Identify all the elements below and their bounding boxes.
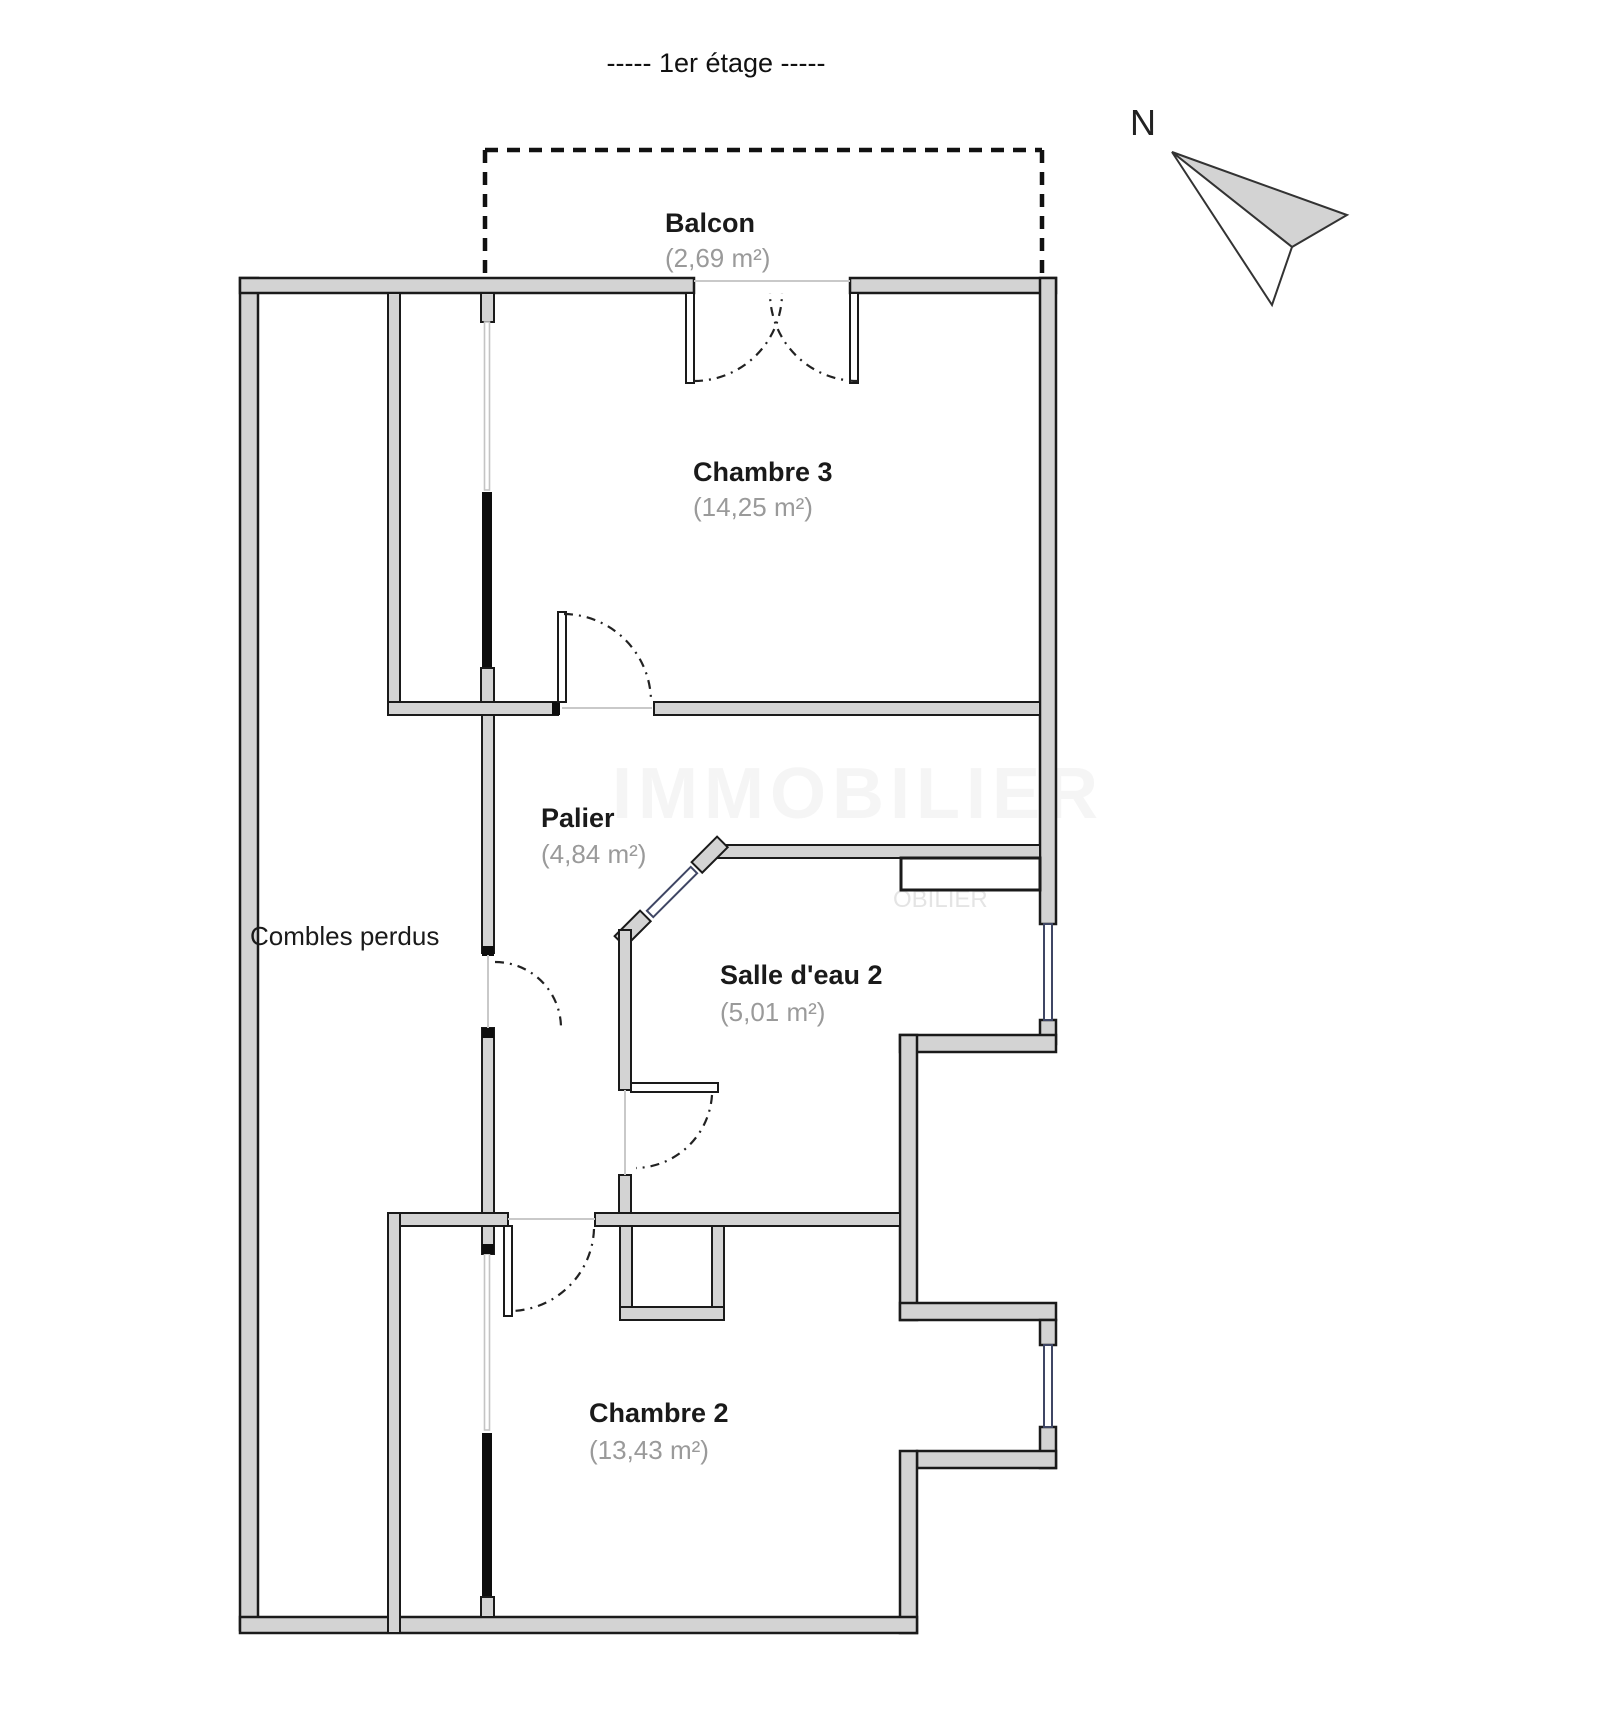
niche: [901, 858, 1040, 890]
wall: [481, 1597, 494, 1617]
room-area-balcon: (2,69 m²): [665, 243, 770, 273]
north-label: N: [1130, 102, 1156, 143]
watermark-text: IMMOBILIER: [612, 754, 1104, 834]
wall: [240, 1617, 917, 1633]
windows: [1044, 924, 1052, 1427]
wall: [900, 1303, 1056, 1320]
door-leaf: [850, 293, 858, 383]
outer-walls: [240, 278, 1056, 1633]
wall: [900, 1035, 1056, 1052]
wall: [900, 1035, 917, 1320]
floor-title: ----- 1er étage -----: [606, 48, 825, 78]
wall-cap: [482, 1244, 494, 1254]
closet-wall: [712, 1226, 724, 1320]
wall-cap: [482, 946, 494, 956]
door-leaf: [504, 1226, 512, 1316]
room-area-chambre3: (14,25 m²): [693, 492, 813, 522]
wall: [388, 702, 558, 715]
window: [1044, 924, 1052, 1020]
room-label-chambre2: Chambre 2: [589, 1398, 729, 1428]
wall-cap: [552, 702, 560, 715]
north-compass: N: [1130, 102, 1347, 305]
door-arc: [694, 293, 782, 381]
room-label-palier: Palier: [541, 803, 615, 833]
room-label-combles: Combles perdus: [250, 921, 439, 951]
wall: [388, 1213, 508, 1226]
glazed-partition: [485, 1254, 490, 1430]
room-label-chambre3: Chambre 3: [693, 457, 833, 487]
wall: [917, 1451, 1056, 1468]
door-leaf: [558, 612, 566, 702]
floor-plan-page: ----- 1er étage ----- N IMMOBILIER OBILI…: [0, 0, 1600, 1734]
door-arc: [495, 962, 561, 1027]
door-leaf: [686, 293, 694, 383]
closet-wall: [620, 1307, 724, 1320]
floor-plan-svg: ----- 1er étage ----- N IMMOBILIER OBILI…: [0, 0, 1600, 1734]
room-area-chambre2: (13,43 m²): [589, 1435, 709, 1465]
door-arc: [770, 293, 858, 381]
door-leaf: [631, 1083, 718, 1092]
wall: [654, 702, 1040, 715]
room-labels: Balcon (2,69 m²) Chambre 3 (14,25 m²) Pa…: [250, 208, 883, 1465]
room-area-palier: (4,84 m²): [541, 839, 646, 869]
window: [1044, 1345, 1052, 1427]
wall: [712, 845, 1040, 858]
wall: [595, 1213, 900, 1226]
room-area-salledeau: (5,01 m²): [720, 997, 825, 1027]
room-label-balcon: Balcon: [665, 208, 755, 238]
door-leaf: [647, 867, 697, 917]
wall: [388, 1213, 400, 1633]
door-arc: [636, 1095, 712, 1168]
door-arc: [564, 614, 651, 700]
closet-wall: [620, 1226, 632, 1320]
wall: [1040, 278, 1056, 924]
wall: [900, 1451, 917, 1633]
wall: [388, 293, 400, 715]
solid-wall-bar: [482, 1433, 492, 1597]
wall: [850, 278, 1056, 293]
wall: [481, 668, 494, 702]
wall-cap: [482, 1028, 494, 1038]
wall: [240, 278, 258, 1630]
threshold-lines: [488, 281, 850, 1219]
wall: [1040, 1320, 1056, 1345]
wall: [482, 715, 494, 953]
wall: [619, 930, 631, 1090]
solid-wall-bar: [482, 492, 492, 668]
glazed-partition: [485, 322, 490, 490]
room-label-salledeau: Salle d'eau 2: [720, 960, 883, 990]
door-arc: [512, 1229, 594, 1311]
wall: [481, 293, 494, 322]
wall: [240, 278, 694, 293]
